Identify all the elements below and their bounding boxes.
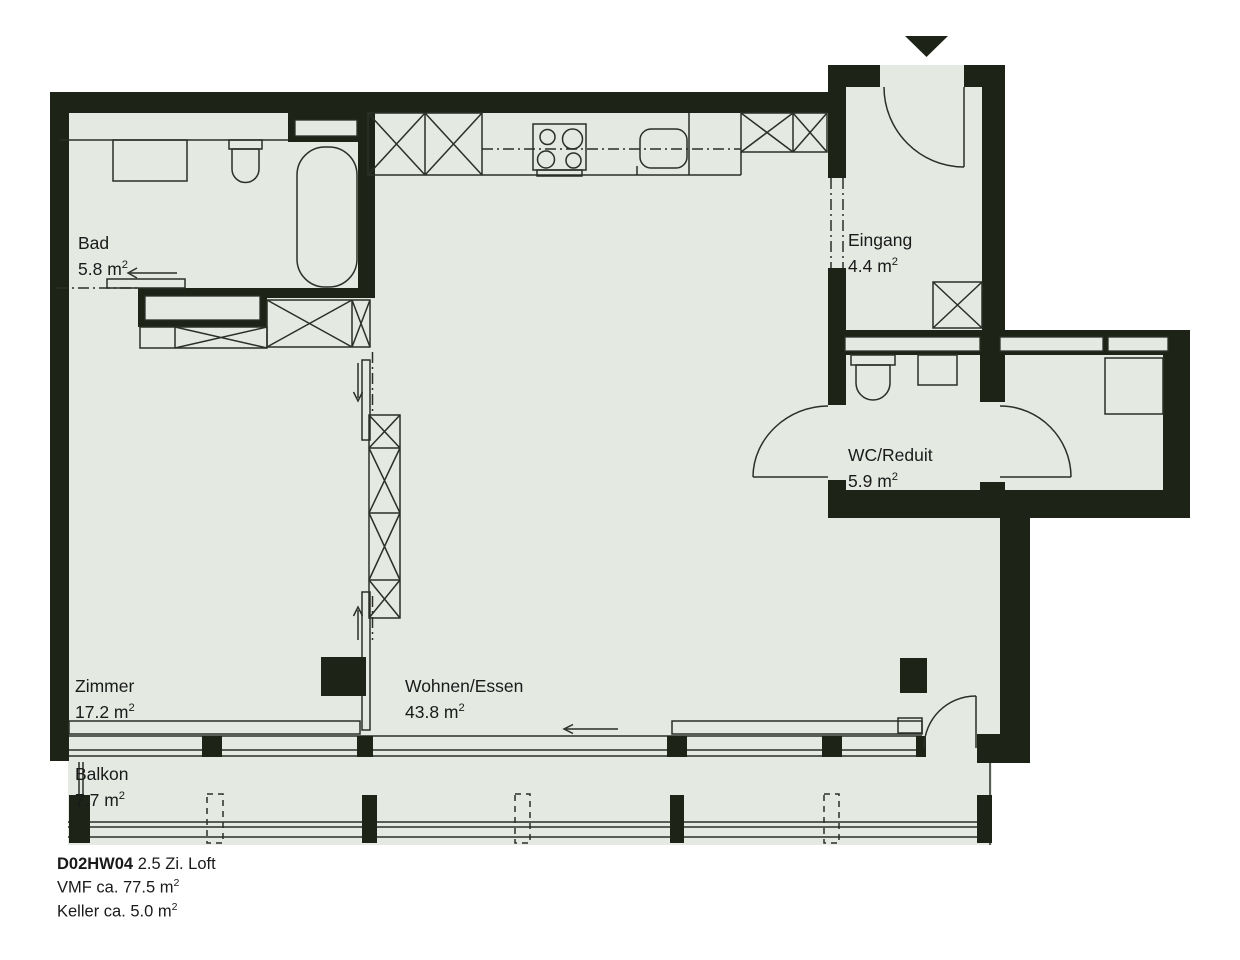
floorplan-drawing bbox=[0, 0, 1240, 960]
room-area: 17.2 m2 bbox=[75, 698, 135, 723]
room-area: 4.4 m2 bbox=[848, 252, 912, 277]
room-name: Zimmer bbox=[75, 676, 135, 698]
room-label-zimmer: Zimmer 17.2 m2 bbox=[75, 676, 135, 723]
eingang-floor bbox=[836, 70, 996, 340]
room-name: Bad bbox=[78, 233, 128, 255]
tub-wall-niche bbox=[295, 120, 357, 136]
room-label-wc-reduit: WC/Reduit 5.9 m2 bbox=[848, 445, 933, 492]
room-label-eingang: Eingang 4.4 m2 bbox=[848, 230, 912, 277]
bad-wall-niche bbox=[145, 296, 260, 320]
room-area: 43.8 m2 bbox=[405, 698, 523, 723]
room-label-wohnen-essen: Wohnen/Essen 43.8 m2 bbox=[405, 676, 523, 723]
room-area: 5.8 m2 bbox=[78, 255, 128, 280]
room-name: Balkon bbox=[75, 764, 129, 786]
room-label-balkon: Balkon 7.7 m2 bbox=[75, 764, 129, 811]
apartment-title: D02HW04 2.5 Zi. Loft bbox=[57, 855, 216, 874]
wc-door-opening bbox=[828, 405, 846, 480]
vmf-area: VMF ca. 77.5 m2 bbox=[57, 874, 216, 898]
entrance-door-opening bbox=[880, 65, 964, 87]
apartment-type: 2.5 Zi. Loft bbox=[138, 855, 216, 873]
title-block: D02HW04 2.5 Zi. Loft VMF ca. 77.5 m2 Kel… bbox=[57, 855, 216, 921]
room-area: 5.9 m2 bbox=[848, 467, 933, 492]
keller-area: Keller ca. 5.0 m2 bbox=[57, 898, 216, 922]
room-name: Wohnen/Essen bbox=[405, 676, 523, 698]
reduit-shelf-1 bbox=[1000, 337, 1103, 351]
reduit-door-opening bbox=[980, 402, 1005, 482]
entrance-marker-icon bbox=[905, 36, 948, 57]
column-left bbox=[321, 657, 366, 696]
room-name: WC/Reduit bbox=[848, 445, 933, 467]
room-label-bad: Bad 5.8 m2 bbox=[78, 233, 128, 280]
column-right bbox=[900, 658, 927, 693]
floorplan: Bad 5.8 m2 Eingang 4.4 m2 WC/Reduit 5.9 … bbox=[0, 0, 1240, 960]
reduit-shelf-2 bbox=[1108, 337, 1168, 351]
room-area: 7.7 m2 bbox=[75, 786, 129, 811]
wc-shelf bbox=[845, 337, 980, 351]
apartment-code: D02HW04 bbox=[57, 855, 133, 873]
room-name: Eingang bbox=[848, 230, 912, 252]
